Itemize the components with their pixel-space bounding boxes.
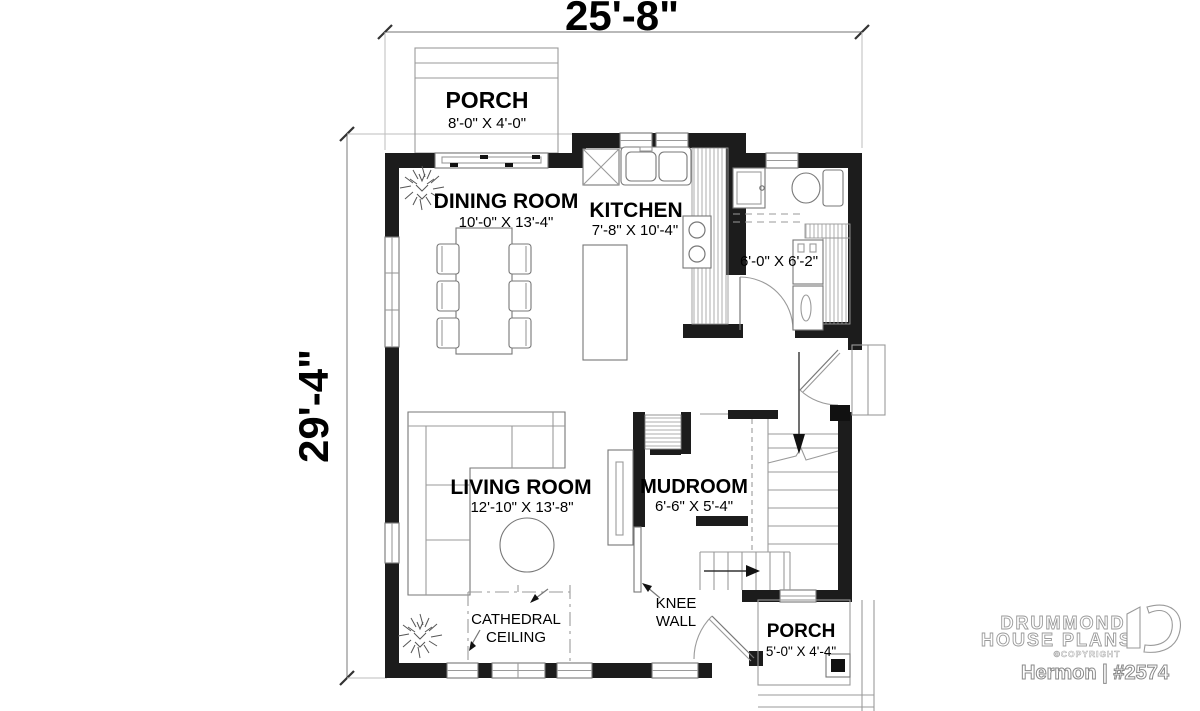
- cathedral-ceiling-label-line1: CATHEDRAL: [471, 611, 561, 628]
- laundry-bath-size: 6'-0" X 6'-2": [740, 253, 818, 270]
- mudroom-label: MUDROOM: [640, 476, 748, 498]
- dining-chair: [437, 244, 459, 274]
- kitchen-sink: [621, 147, 691, 185]
- stair-direction-arrow: [704, 565, 760, 577]
- plan-name-number: Hermon | #2574: [1021, 662, 1170, 684]
- drummond-logo-icon: [1127, 605, 1180, 652]
- plant-icon: [398, 614, 442, 658]
- porch-bottom-label: PORCH: [767, 621, 836, 642]
- stair-break-line: [768, 448, 838, 463]
- dishwasher: [583, 149, 619, 185]
- window: [447, 663, 478, 678]
- laundry-counter: [823, 238, 850, 324]
- floor-plan-drawing: 25'-8" 29'-4" PORCH 8'-0" X 4'-0": [0, 0, 1200, 711]
- window: [385, 523, 399, 563]
- height-dimension-label: 29'-4": [290, 349, 337, 463]
- brand-copyright: ©COPYRIGHT: [1054, 649, 1121, 659]
- toilet: [792, 170, 843, 206]
- dining-table: [456, 228, 512, 354]
- side-entry-door: [800, 350, 840, 405]
- branding: DRUMMOND HOUSE PLANS ©COPYRIGHT Hermon |…: [981, 605, 1180, 684]
- leader-arrow: [469, 630, 480, 651]
- leader-arrow: [530, 589, 548, 603]
- bath-fixtures: [733, 168, 850, 330]
- window: [656, 133, 688, 148]
- front-door: [694, 616, 754, 661]
- kitchen-label: KITCHEN: [589, 199, 682, 222]
- dining-chair: [509, 244, 531, 274]
- stairs: [700, 345, 885, 590]
- living-room-size: 12'-10" X 13'-8": [470, 499, 573, 516]
- kitchen-island: [583, 245, 627, 360]
- porch-top-size: 8'-0" X 4'-0": [448, 115, 526, 132]
- window: [557, 663, 592, 678]
- dining-room-label: DINING ROOM: [434, 190, 579, 213]
- kitchen-size: 7'-8" X 10'-4": [592, 222, 678, 239]
- brand-name-line2: HOUSE PLANS: [981, 630, 1133, 650]
- width-dimension-label: 25'-8": [565, 0, 679, 39]
- mudroom-closet: [645, 415, 681, 449]
- floor-plan-page: 25'-8" 29'-4" PORCH 8'-0" X 4'-0": [0, 0, 1200, 711]
- dryer: [793, 286, 823, 330]
- window: [652, 663, 698, 678]
- knee-wall: [634, 527, 641, 592]
- tv-cabinet: [608, 450, 633, 545]
- outside-landing: [830, 345, 885, 421]
- window: [492, 663, 545, 678]
- bathroom-sink: [733, 168, 765, 208]
- mudroom-size: 6'-6" X 5'-4": [655, 498, 733, 515]
- window: [766, 153, 798, 168]
- dining-chair: [509, 318, 531, 348]
- laundry-counter: [805, 224, 850, 238]
- dining-chair: [437, 281, 459, 311]
- porch-top-label: PORCH: [445, 87, 528, 113]
- porch-top: PORCH 8'-0" X 4'-0": [415, 48, 558, 153]
- laundry-door: [740, 277, 793, 330]
- knee-wall-label-line2: WALL: [656, 613, 696, 630]
- porch-bottom-size: 5'-0" X 4'-4": [766, 644, 836, 659]
- window: [385, 237, 399, 347]
- cathedral-ceiling-label-line2: CEILING: [486, 629, 546, 646]
- coffee-table: [500, 518, 554, 572]
- living-room-label: LIVING ROOM: [450, 476, 591, 499]
- dining-chair: [437, 318, 459, 348]
- window: [620, 133, 652, 148]
- dining-chair: [509, 281, 531, 311]
- stair-down-arrow: [793, 352, 805, 454]
- dining-room-size: 10'-0" X 13'-4": [459, 214, 554, 231]
- porch-bottom: PORCH 5'-0" X 4'-4": [758, 600, 874, 711]
- knee-wall-label-line1: KNEE: [656, 595, 697, 612]
- french-door: [435, 153, 548, 168]
- stove: [683, 216, 711, 268]
